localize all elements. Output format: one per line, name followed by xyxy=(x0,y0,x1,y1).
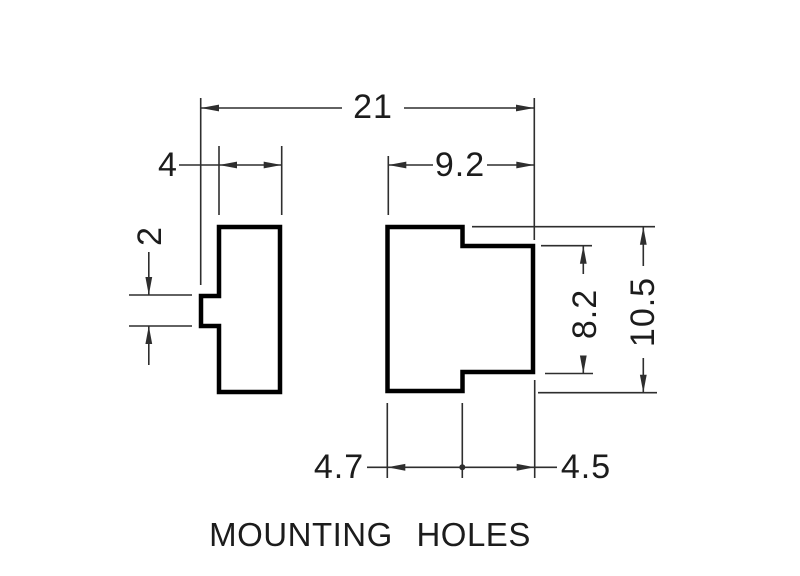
left-part-outline xyxy=(201,227,280,392)
dim-right-part-width: 9.2 xyxy=(435,146,485,184)
arrow-4-left xyxy=(219,162,237,169)
arrow-92-right xyxy=(516,162,534,169)
arrow-21-right xyxy=(516,105,534,112)
drawing-canvas: 21 4 9.2 2 8.2 10.5 4.7 4.5 MOUNTING HOL… xyxy=(0,0,800,576)
arrow-4-right xyxy=(264,162,282,169)
dim-inner-step-height: 8.2 xyxy=(566,289,604,339)
mounting-holes-technical-drawing: 21 4 9.2 2 8.2 10.5 4.7 4.5 MOUNTING HOL… xyxy=(0,0,800,576)
arrow-92-left xyxy=(388,162,406,169)
arrow-2-top xyxy=(145,277,152,295)
arrow-105-bottom xyxy=(640,375,647,393)
arrow-21-left xyxy=(201,105,219,112)
arrow-2-bottom xyxy=(145,326,152,344)
arrow-105-top xyxy=(640,227,647,245)
part-outlines xyxy=(201,227,533,392)
arrow-47-left xyxy=(387,464,405,471)
right-part-outline xyxy=(388,227,534,391)
dim-overall-width: 21 xyxy=(353,88,393,126)
drawing-title: MOUNTING HOLES xyxy=(209,516,531,553)
arrow-82-bottom xyxy=(580,356,587,374)
arrow-82-top xyxy=(580,246,587,264)
dim-left-part-width: 4 xyxy=(158,146,178,184)
dimension-lines xyxy=(129,98,657,478)
dim-overall-height: 10.5 xyxy=(624,277,662,347)
dimension-origin-dot xyxy=(459,464,465,470)
dim-notch-height: 2 xyxy=(131,226,169,246)
dimension-texts: 21 4 9.2 2 8.2 10.5 4.7 4.5 xyxy=(131,88,662,486)
arrow-45-right xyxy=(517,464,535,471)
dim-offset-left: 4.7 xyxy=(314,448,364,486)
dim-offset-right: 4.5 xyxy=(561,448,611,486)
